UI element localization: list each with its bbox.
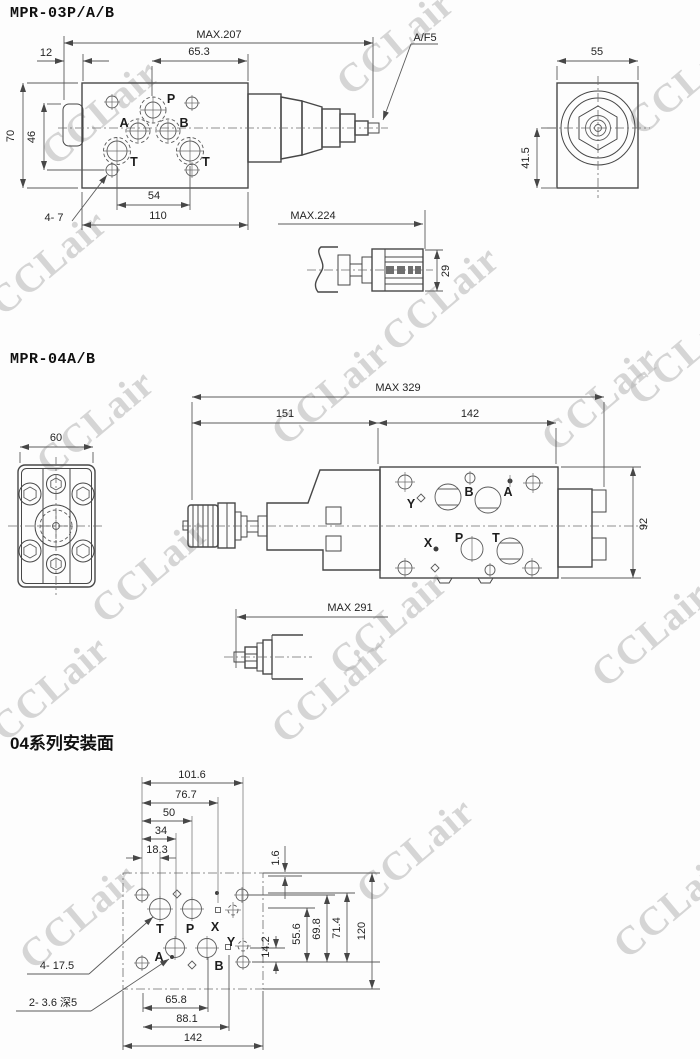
mpr03-dimensions: MAX.207 12 65.3 A/F5 70 46 (5, 29, 438, 230)
dim-101-6: 101.6 (178, 769, 206, 781)
drawing-canvas: CCLair CCLair CCLair CCLair CCLair CCLai… (0, 0, 700, 1059)
label-2-3-6: 2- 3.6 深5 (29, 996, 77, 1009)
mpr04-main-view (182, 467, 648, 583)
mount-label-a: A (154, 950, 163, 964)
label-4-17-5: 4- 17.5 (40, 960, 74, 972)
dim-55: 55 (591, 46, 603, 58)
port-label-t: T (492, 531, 500, 545)
mpr03-ports: P A B T T (103, 92, 210, 178)
mpr03-knob-side-view: MAX.224 29 (278, 210, 452, 292)
dim-54: 54 (148, 190, 160, 202)
mpr03-end-view: 55 41.5 (520, 46, 650, 198)
dim-110: 110 (149, 210, 167, 222)
mount-label-t: T (156, 922, 164, 936)
label-af5: A/F5 (413, 32, 436, 44)
dim-46: 46 (26, 131, 38, 143)
dim-1-6: 1.6 (270, 850, 282, 865)
label-4-holes: 4- 7 (45, 212, 64, 224)
dim-max224: MAX.224 (290, 210, 335, 222)
technical-drawing: P A B T T MAX.207 12 65.3 A/F5 (0, 0, 700, 1059)
mount04-dimensions: 101.6 76.7 50 34 18.3 1.6 (16, 769, 380, 1050)
dim-34: 34 (155, 825, 167, 837)
dim-65-3: 65.3 (188, 46, 209, 58)
mpr04-screw-end-view: MAX 291 (224, 602, 388, 679)
mount-label-x: X (211, 920, 220, 934)
mpr04-end-view: 60 (8, 432, 104, 595)
port-label-a: A (119, 116, 128, 130)
dim-14-2: 14.2 (260, 936, 272, 957)
dim-41-5: 41.5 (520, 147, 532, 168)
dim-76-7: 76.7 (175, 789, 196, 801)
dim-18-3: 18.3 (146, 844, 167, 856)
dim-142: 142 (461, 408, 479, 420)
mount04-ports: T P X A B Y (134, 887, 251, 973)
mount-label-y: Y (227, 935, 236, 949)
port-label-x: X (424, 536, 433, 550)
dim-142-bottom: 142 (184, 1032, 202, 1044)
port-label-t-left: T (130, 155, 138, 169)
port-label-y: Y (407, 497, 416, 511)
port-label-b: B (464, 485, 473, 499)
port-label-b: B (179, 116, 188, 130)
dim-max207: MAX.207 (196, 29, 241, 41)
dim-92: 92 (638, 518, 650, 530)
dim-71-4: 71.4 (331, 917, 343, 938)
dim-50: 50 (163, 807, 175, 819)
dim-65-8: 65.8 (165, 994, 186, 1006)
port-a-circle (475, 487, 501, 513)
dim-29: 29 (440, 265, 452, 277)
dim-120: 120 (356, 922, 368, 940)
dim-55-6: 55.6 (291, 923, 303, 944)
port-label-a: A (503, 485, 512, 499)
dim-70: 70 (5, 130, 17, 142)
dim-60: 60 (50, 432, 62, 444)
dim-88-1: 88.1 (176, 1013, 197, 1025)
mount-label-b: B (214, 959, 223, 973)
mpr04-ports: Y B A X P T (395, 471, 543, 578)
port-label-t-right: T (202, 155, 210, 169)
mpr04-dimensions: MAX 329 151 142 92 (192, 382, 650, 578)
port-b-circle (435, 484, 461, 510)
port-label-p: P (455, 531, 463, 545)
dim-max329: MAX 329 (375, 382, 420, 394)
dim-151: 151 (276, 408, 294, 420)
dim-69-8: 69.8 (311, 918, 323, 939)
port-t-circle (497, 538, 523, 564)
mount-label-p: P (186, 922, 194, 936)
dim-12: 12 (40, 47, 52, 59)
dim-max291: MAX 291 (327, 602, 372, 614)
port-label-p: P (167, 92, 175, 106)
